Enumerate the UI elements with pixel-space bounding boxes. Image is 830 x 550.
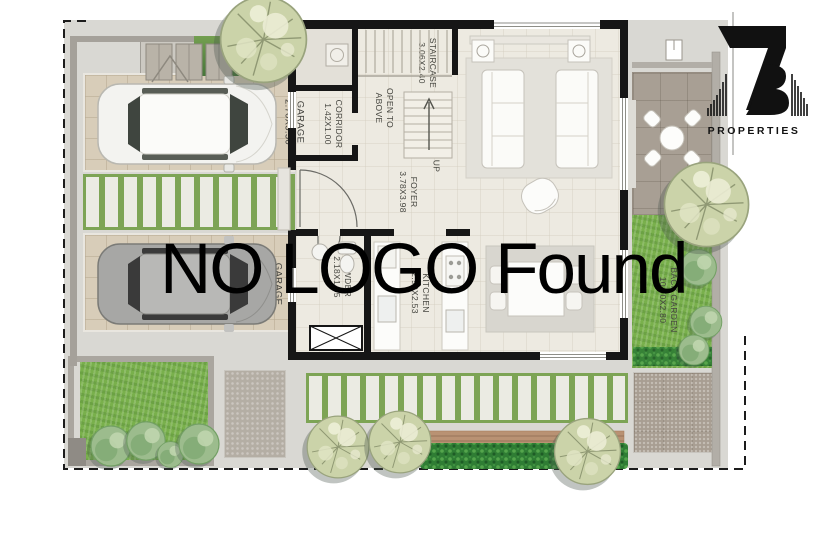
paver-square-right — [633, 372, 720, 453]
room-name: STAIRCASE — [427, 38, 438, 88]
brand-logo-7b-icon — [700, 14, 810, 124]
paved-pad-left — [224, 370, 286, 458]
room-dims: 1.42X1.00 — [322, 100, 333, 149]
room-name: UP — [430, 160, 441, 172]
brand-logo-name: PROPERTIES — [698, 125, 810, 137]
room-dims: 2.70X5.50 — [281, 99, 293, 145]
room-label-up: UP — [430, 160, 441, 172]
room-name: LIVING ROOM — [528, 86, 539, 146]
room-name: CORRIDOR — [333, 100, 344, 149]
front-lawn — [80, 362, 208, 460]
room-label-foyer: FOYER 3.78X3.98 — [397, 171, 419, 212]
room-dims: 3.06X2.40 — [416, 38, 427, 88]
striped-paving-bottom — [306, 373, 628, 423]
room-name: FOYER — [408, 171, 419, 212]
room-name: GARAGE — [293, 99, 305, 145]
room-label-garage-1: GARAGE 2.70X5.50 — [281, 99, 306, 145]
room-label-staircase: STAIRCASE 3.06X2.40 — [416, 38, 438, 88]
room-name: LAUN. — [330, 41, 341, 82]
watermark-text: NO LOGO Found — [160, 229, 686, 310]
floor-plan-image: GARAGE 2.70X5.50 GARAGE 3.03X5.50 LAUN. … — [0, 0, 830, 550]
room-dims: 1.30X1.00 — [319, 41, 330, 82]
room-label-corridor: CORRIDOR 1.42X1.00 — [322, 100, 344, 149]
room-name: OPEN TO ABOVE — [373, 83, 395, 133]
striped-paving-mid — [83, 174, 295, 230]
garage-stall-1 — [83, 73, 295, 172]
room-label-living-room: LIVING ROOM 4.85x3.85 — [517, 86, 539, 146]
room-label-open-to-above: OPEN TO ABOVE — [373, 83, 395, 133]
room-label-laundry: LAUN. 1.30X1.00 — [319, 41, 341, 82]
room-dims: 3.78X3.98 — [397, 171, 408, 212]
room-dims: 4.85x3.85 — [517, 86, 528, 146]
